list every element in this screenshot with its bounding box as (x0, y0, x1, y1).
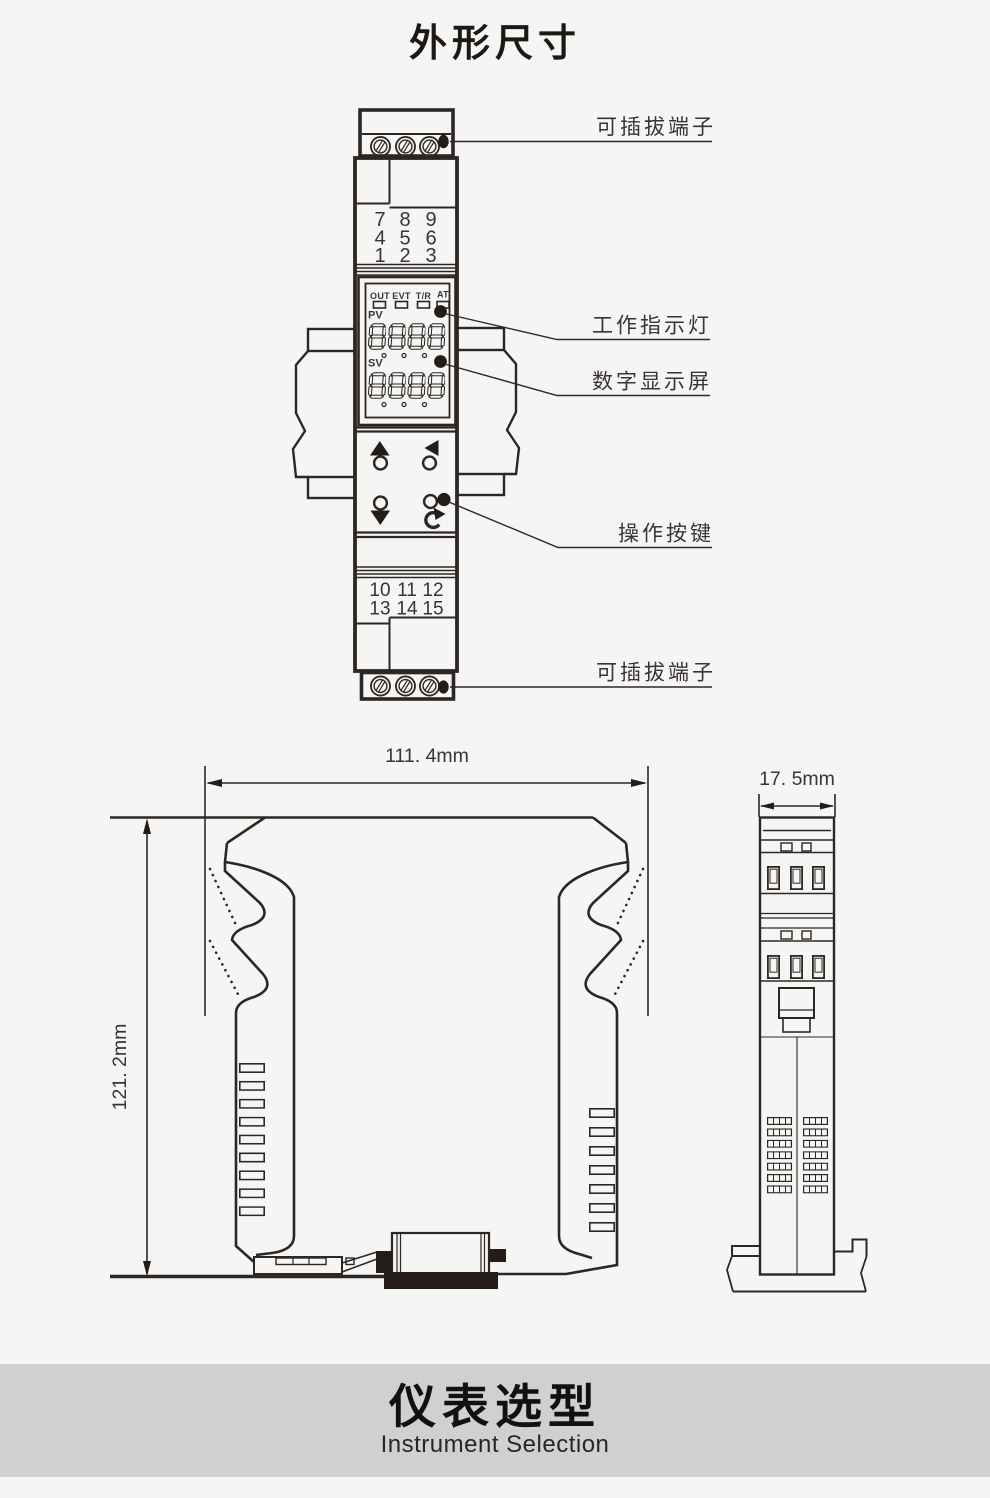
technical-drawing: 7 8 9 4 5 6 1 2 3 OUT EVT T/R AT (0, 0, 990, 1360)
up-button (374, 457, 387, 470)
left-arrow-icon (425, 440, 439, 456)
side-body (760, 818, 834, 1275)
top-terminal-numbers: 7 8 9 4 5 6 1 2 3 (374, 209, 436, 267)
front-view: 7 8 9 4 5 6 1 2 3 OUT EVT T/R AT (293, 110, 716, 699)
width-dimension-label: 111. 4mm (385, 745, 469, 767)
bottom-terminal-block (362, 673, 454, 700)
status-led-label-out: OUT (370, 291, 390, 301)
screw-icon (420, 676, 439, 695)
callout-dot (434, 355, 447, 368)
side-terminal-slots-mid (768, 956, 824, 978)
label-pluggable-terminal-bottom: 可插拔端子 (596, 662, 716, 685)
left-button (423, 457, 436, 470)
side-vent-grid-right (804, 1118, 828, 1193)
label-digital-display: 数字显示屏 (592, 371, 712, 394)
status-led-label-at: AT (437, 290, 449, 300)
callout-dot (437, 493, 450, 506)
height-dimension: 121. 2mm (109, 819, 151, 1277)
page: 外形尺寸 (0, 0, 990, 1498)
top-terminal-block (360, 110, 453, 156)
din-latch (779, 988, 814, 1018)
side-terminal-slots-top (768, 867, 824, 889)
bottom-terminal-numbers: 10 11 12 13 14 15 (369, 580, 443, 620)
screw-icon (396, 137, 415, 156)
vent-slots-right (590, 1109, 614, 1231)
rail-bus-connector (376, 1233, 506, 1289)
screw-icon (396, 676, 415, 695)
callouts: 可插拔端子 工作指示灯 数字显示屏 操作按键 可插拔端子 (447, 116, 717, 687)
depth-dimension-label: 17. 5mm (759, 768, 835, 790)
sv-decimal-points (382, 403, 427, 407)
status-led-label-tr: T/R (416, 291, 432, 301)
pv-digits (368, 324, 445, 350)
screw-icon (371, 137, 390, 156)
grip-dotted-lines (210, 869, 643, 998)
sv-label: SV (368, 358, 383, 370)
footer-subtitle: Instrument Selection (381, 1431, 610, 1459)
terminal-number: 14 (396, 599, 418, 620)
status-led-label-evt: EVT (392, 291, 411, 301)
up-arrow-icon (370, 441, 390, 456)
terminal-number: 2 (399, 245, 410, 267)
down-arrow-icon (371, 511, 391, 526)
down-button (374, 497, 387, 510)
din-clip (254, 1252, 377, 1274)
din-rail-break (293, 328, 519, 498)
screw-icon (420, 137, 439, 156)
top-view: 111. 4mm 121. 2mm (109, 745, 648, 1289)
pv-label: PV (368, 310, 383, 322)
loop-arrow-icon (426, 508, 446, 528)
vent-hatch-bottom (356, 567, 456, 578)
sv-digits (368, 373, 445, 399)
height-dimension-label: 121. 2mm (109, 1024, 131, 1111)
callout-dot (438, 680, 448, 693)
terminal-number: 13 (369, 599, 390, 620)
screw-icon (371, 676, 390, 695)
label-pluggable-terminal-top: 可插拔端子 (596, 116, 716, 139)
terminal-number: 1 (374, 245, 385, 267)
indicator-led-dot (434, 305, 447, 318)
set-button (424, 495, 437, 508)
side-view: 17. 5mm (727, 768, 867, 1292)
enclosure-outline (110, 818, 643, 1277)
display-module: OUT EVT T/R AT PV (359, 277, 456, 425)
footer-title: 仪表选型 (389, 1382, 601, 1431)
width-dimension: 111. 4mm (205, 745, 648, 1016)
footer-band: 仪表选型 Instrument Selection (0, 1364, 990, 1477)
control-buttons (370, 440, 451, 527)
side-vent-grid-left (768, 1118, 792, 1193)
terminal-number: 3 (425, 245, 436, 267)
label-working-indicator: 工作指示灯 (592, 315, 712, 338)
callout-dot (438, 135, 448, 149)
vent-slots-left (240, 1064, 264, 1216)
terminal-number: 15 (422, 599, 443, 620)
label-operation-buttons: 操作按键 (618, 523, 714, 546)
depth-dimension: 17. 5mm (759, 768, 835, 817)
pv-decimal-points (382, 354, 427, 358)
